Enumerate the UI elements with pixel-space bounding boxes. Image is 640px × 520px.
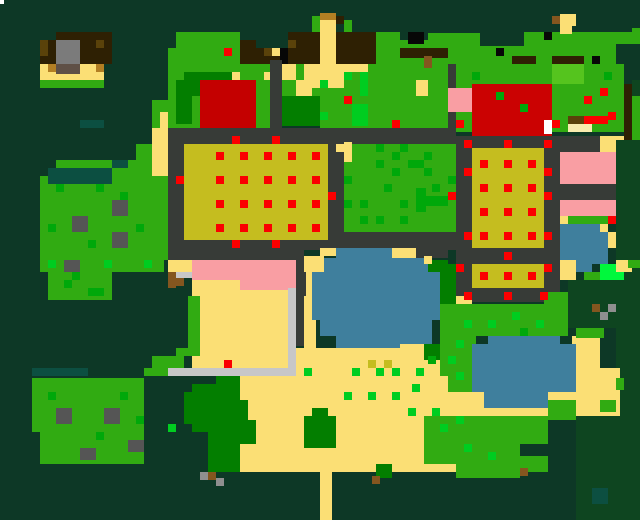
map-block-road [456,136,472,296]
map-block-sand [560,216,568,224]
map-block-water [488,336,560,344]
map-block-red [328,192,336,200]
map-block-dkgreen [176,80,200,96]
map-block-gdot [344,200,352,208]
map-block-red [480,184,488,192]
map-block-red [464,140,472,148]
map-block-red [288,224,296,232]
map-block-red [544,232,552,240]
map-block-gdot [136,224,144,232]
map-block-gdot [48,392,56,400]
map-block-red [216,200,224,208]
map-block-water [576,260,592,272]
map-block-red [540,292,548,300]
map-block-gdot [472,72,480,80]
map-block-sand [168,260,192,272]
map-block-red [584,96,592,104]
map-block-vgreen [352,368,360,376]
map-block-gdot [48,224,56,232]
map-block-vgreen [512,312,520,320]
map-block-road [168,128,456,144]
map-block-vgreen [320,112,328,120]
map-block-red1 [200,80,256,128]
map-block-mbrown [168,272,176,288]
map-block-red [552,120,560,128]
map-block-red [240,176,248,184]
map-block-red [608,112,616,120]
map-block-red [504,272,512,280]
map-block-obrown [96,40,104,48]
map-block-red [528,160,536,168]
map-block-dkgreen [304,416,336,448]
map-block-red [264,224,272,232]
map-block-mbrown [592,304,600,312]
map-block-red [448,192,456,200]
map-block-red [544,140,552,148]
map-block-red [504,292,512,300]
map-block-rock [56,408,72,424]
map-block-vgreen [48,260,56,268]
map-block-red [344,96,352,104]
map-block-grass [240,64,256,80]
town-map-canvas[interactable] [0,0,640,520]
map-block-gdot [428,356,436,364]
map-block-red [456,264,464,272]
map-block-water [336,248,392,258]
map-block-water [472,344,576,392]
map-block-gdot [520,328,528,336]
map-block-lbrown [320,13,336,20]
map-block-red [504,252,512,260]
map-block-vgreen [368,392,376,400]
map-block-sand [560,26,572,34]
map-block-vgreen [360,72,368,96]
map-block-teal [48,168,112,184]
game-window [0,0,640,520]
map-block-red [528,184,536,192]
map-block-gdot [360,216,368,224]
map-block-red [528,232,536,240]
map-block-gdot [400,200,408,208]
map-block-dkgreen [176,96,192,124]
map-block-obrown [40,40,48,56]
map-block-grass [628,260,640,268]
map-block-vgreen [408,408,416,416]
map-block-red [480,208,488,216]
map-block-rock [112,200,128,216]
map-block-red [480,232,488,240]
map-block-pathgray [168,368,296,376]
map-block-gdot [448,176,456,184]
map-block-pink [192,260,296,280]
map-block-bg [256,40,288,48]
map-block-mbrown [552,16,560,24]
map-block-dkgreen [216,376,240,392]
map-block-sand [484,408,548,416]
map-block-sand [336,144,344,152]
map-block-vgreen [144,260,152,268]
map-block-gdot [120,392,128,400]
map-block-pink [560,200,616,216]
map-block-gdot [56,184,64,192]
map-block-lbrown [96,64,104,72]
map-block-teal [80,120,104,128]
map-block-dkgreen [184,392,192,424]
map-block-red [600,88,608,96]
map-block-water [312,272,440,320]
map-block-black [544,32,552,40]
map-block-gdot [400,144,408,152]
map-block-vgreen [456,372,464,380]
map-block-red [240,224,248,232]
map-block-red [288,176,296,184]
map-block-gdot [376,144,384,152]
map-block-door [56,64,80,74]
map-block-red [312,200,320,208]
map-block-red [480,272,488,280]
map-block-red [456,120,464,128]
map-block-sand [560,14,576,26]
map-block-red [232,240,240,248]
map-block-gdot [64,280,72,288]
map-block-red [464,232,472,240]
map-block-rock [80,448,96,460]
map-block-obrown [264,48,272,56]
map-block-pink [560,152,616,184]
map-block-sand [560,260,576,280]
map-block-sand [576,368,620,392]
map-block-grass [632,96,640,144]
map-block-red [608,216,616,224]
map-block-roofgray [56,40,80,64]
map-block-road [168,144,184,248]
map-block-sand [296,80,312,96]
map-block-red [584,116,608,124]
map-block-sand [304,64,368,72]
map-block-teal [32,368,88,376]
map-block-road [560,184,616,200]
map-block-vgreen [412,384,420,392]
map-block-red [288,152,296,160]
map-block-pathgray [288,288,296,368]
map-block-bg [0,464,192,520]
map-block-red2 [472,84,552,136]
map-block-mbrown [208,472,216,480]
map-block-road [544,136,560,296]
map-block-white [544,120,552,134]
map-block-red [264,152,272,160]
map-block-red [528,208,536,216]
map-block-red [272,136,280,144]
map-block-red [504,160,512,168]
map-block-graylt [200,472,208,480]
map-block-grass [144,368,168,376]
map-block-dkgreen [280,96,320,126]
map-block-vgreen [456,340,464,348]
map-block-sand [320,248,336,256]
map-block-sand [160,112,168,128]
map-block-grass [136,144,152,176]
map-block-red [240,200,248,208]
map-block-black [592,56,600,64]
map-block-grass [152,356,184,368]
map-block-gdot [88,240,96,248]
map-block-red [392,120,400,128]
map-block-gdot [424,168,432,176]
map-block-graylt [608,304,616,312]
map-block-vgreen [432,408,440,416]
map-block-pink [448,88,472,112]
map-block-sand [280,64,296,80]
map-block-vgreen [448,356,456,364]
map-block-gdot [416,160,424,168]
map-block-grass [320,88,344,128]
map-block-red [264,200,272,208]
map-block-grass [616,378,624,390]
map-block-sand [548,392,576,400]
map-block-grass [152,112,160,120]
map-block-red [544,264,552,272]
map-block-dkgreen [312,408,328,416]
map-block-vgreen [376,368,384,376]
map-block-rock [72,216,88,232]
map-block-red [216,152,224,160]
map-block-graylt [216,478,224,486]
map-block-gdot [384,184,392,192]
map-block-red [224,360,232,368]
map-block-grass [376,32,400,40]
map-block-gdot [360,200,368,208]
map-block-obrown [288,40,296,48]
map-block-grass [40,80,104,88]
map-block-vgreen [536,320,544,328]
map-block-black [496,48,504,56]
map-block-vgreen [488,452,496,460]
map-block-gdot [496,92,504,100]
map-block-grass [176,32,240,48]
map-block-forest [632,80,640,96]
map-block-rock [128,440,144,452]
map-block-lbrown [48,64,56,72]
map-block-graylt [600,312,608,320]
map-block-gdot [96,288,104,296]
map-block-dbrown [56,32,112,40]
map-block-red [544,192,552,200]
map-block-red [504,208,512,216]
map-block-dbrown [368,32,376,64]
map-block-forest [576,416,640,520]
map-block-road [560,136,600,152]
map-block-sand [424,256,432,264]
map-block-rock [112,232,128,248]
map-block-grass [576,328,604,338]
map-block-sand [304,256,324,272]
map-block-red [216,176,224,184]
map-block-sand [344,142,352,162]
map-block-red [504,140,512,148]
map-block-gdot [400,216,408,224]
map-block-vgreen [352,104,368,126]
map-block-red [272,240,280,248]
map-block-gdot [392,168,400,176]
map-block-red [464,292,472,300]
map-block-gdot [432,184,440,192]
map-block-mbrown [520,468,528,476]
map-block-vgreen [416,368,424,376]
map-block-white [0,0,4,4]
map-block-sand [572,336,600,372]
map-block-gdot [392,152,400,160]
map-block-gdot [136,416,144,424]
map-block-grass [188,296,200,356]
map-block-gdot [96,184,104,192]
map-block-red [232,136,240,144]
map-block-sand [392,248,416,258]
map-block-teal [592,488,608,504]
map-block-gdot [96,432,104,440]
map-block-grass [548,400,576,420]
map-block-vgreen [104,260,112,268]
map-block-sand [608,232,616,248]
map-block-red [504,232,512,240]
map-block-dbrown [336,16,344,24]
map-block-gdot [520,104,528,112]
map-block-gdot [424,152,432,160]
map-block-gdot [604,72,612,80]
map-block-grass [632,28,640,44]
map-block-gdot [376,216,384,224]
map-block-gdot [120,192,128,200]
map-block-road [270,60,282,130]
map-block-sand [416,80,428,96]
map-block-sand [320,472,332,520]
map-block-olive [384,360,392,368]
map-block-road [416,248,448,258]
map-block-red [288,200,296,208]
map-block-red [216,224,224,232]
map-block-grass [600,400,616,412]
map-block-red [240,152,248,160]
map-block-sand [232,72,240,80]
map-block-mbrown [424,56,432,68]
map-block-red [176,176,184,184]
map-block-red [480,160,488,168]
map-block-dbrown [624,84,632,142]
map-block-grass [584,272,600,280]
map-block-grasslt [552,64,584,84]
map-block-vgreen [168,424,176,432]
map-block-red [312,224,320,232]
map-block-bg [332,478,576,520]
map-block-dbrown [512,56,536,64]
map-block-black [408,32,424,44]
map-block-grass [400,64,448,132]
map-block-grass [32,378,144,432]
map-block-water [320,320,432,336]
map-block-red [312,152,320,160]
map-block-red [544,168,552,176]
map-block-vgreen [320,80,328,88]
map-block-vgreen [344,392,352,400]
map-block-rock [104,408,120,424]
map-block-vgreen [456,416,464,424]
map-block-vgreen [344,72,352,80]
map-block-grass [312,16,320,32]
map-block-gdot [424,196,448,206]
map-block-teal [112,160,128,168]
map-block-olive [184,144,328,240]
map-block-gdot [408,160,416,168]
map-block-grass [344,20,352,32]
map-block-dbrown [552,56,584,64]
map-block-water [324,258,432,272]
map-block-vgreen [304,368,312,376]
map-block-water [484,392,548,408]
map-block-red [224,48,232,56]
map-block-sand [600,224,608,232]
map-block-rock [64,260,80,272]
map-block-olive [368,360,376,368]
map-block-obrown [568,116,584,124]
map-block-vgreen [392,392,400,400]
map-block-red [312,176,320,184]
map-block-dkgreen [224,420,256,444]
map-block-sand [272,48,280,56]
map-block-vgreen [440,424,448,432]
map-block-gdot [88,288,96,296]
map-block-sandpale [568,124,592,132]
map-block-vgreen [488,320,496,328]
map-block-red [264,176,272,184]
map-block-gdot [344,176,352,184]
map-block-mbrown [176,278,184,286]
map-block-red [528,272,536,280]
map-block-mbrown [372,476,380,484]
map-block-red [504,184,512,192]
map-block-red [464,168,472,176]
map-block-dkgreen [184,72,236,80]
map-block-gdot [376,160,384,168]
map-block-gdot [72,272,80,280]
map-block-vgreen [464,444,472,452]
map-block-vgreen [392,368,400,376]
map-block-vgreen [464,320,472,328]
